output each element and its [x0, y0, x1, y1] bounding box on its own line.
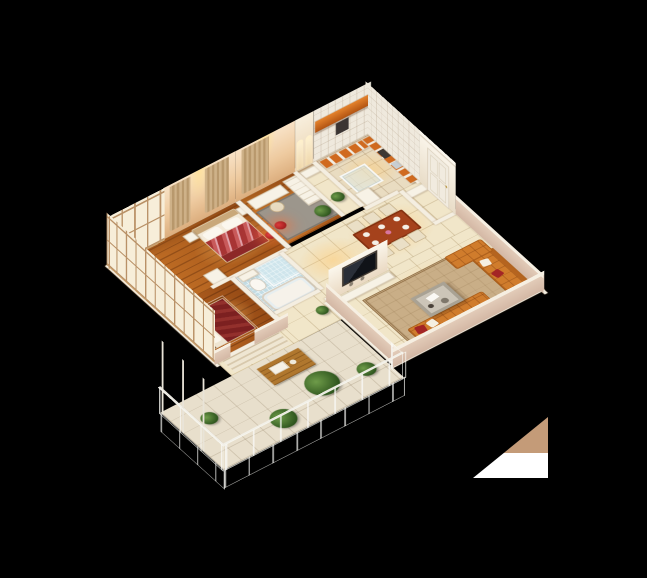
study-curtain: [242, 136, 269, 195]
tv-speaker: [360, 276, 364, 282]
triangle-artifact: [473, 417, 548, 478]
wall-arch-niche: [305, 134, 311, 167]
tv-speaker: [349, 281, 353, 287]
dining-plate: [377, 223, 387, 230]
wall-arch-niche: [297, 138, 303, 171]
hallway-niche-wall: [295, 111, 313, 172]
dining-plate: [361, 231, 371, 238]
dining-flowers: [384, 229, 392, 235]
master-curtain: [170, 176, 191, 231]
door-knob: [445, 185, 447, 189]
render-stage: [0, 0, 647, 578]
